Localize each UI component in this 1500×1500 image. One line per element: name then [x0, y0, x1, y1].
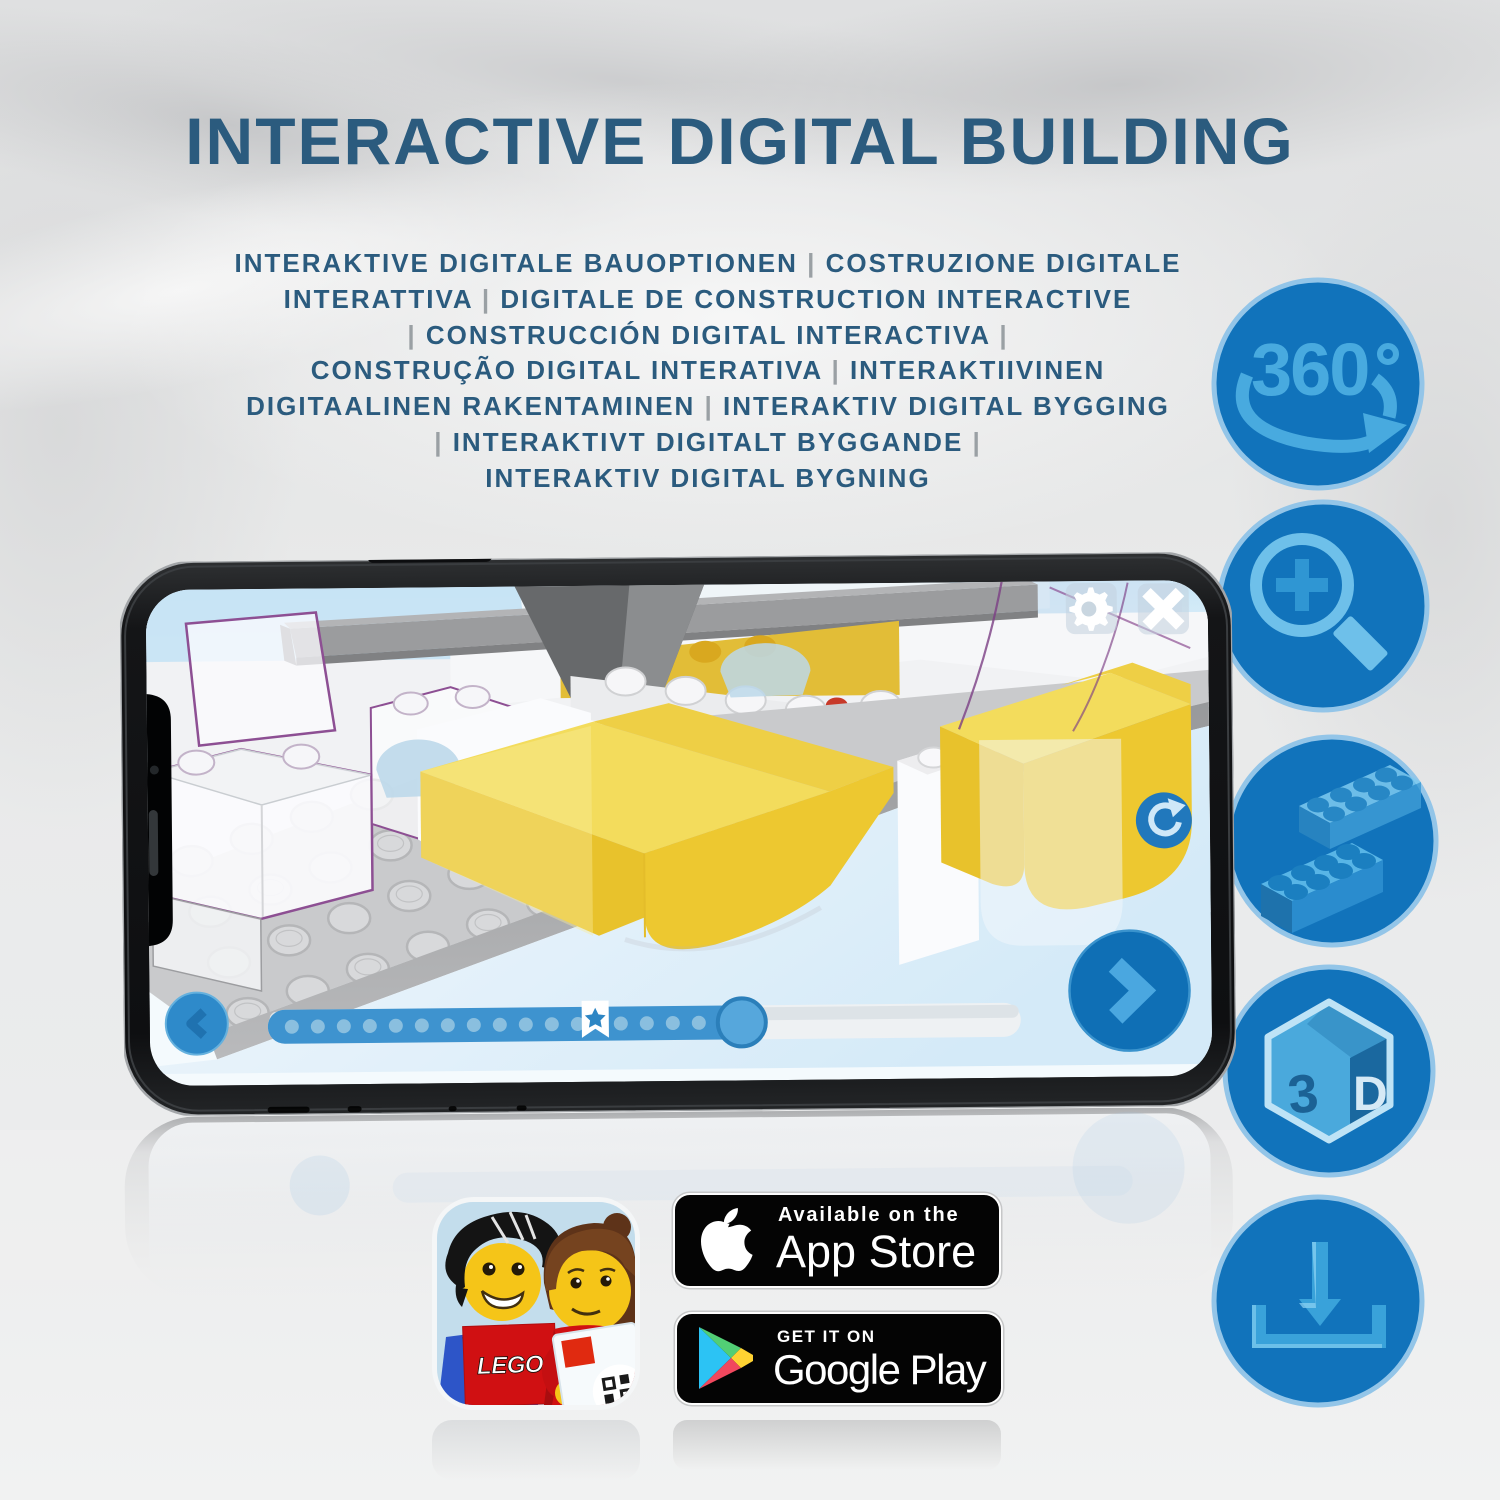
svg-text:LEGO: LEGO [477, 1351, 545, 1380]
svg-text:3: 3 [1285, 1063, 1321, 1126]
svg-text:360: 360 [1251, 328, 1368, 411]
svg-text:D: D [1353, 1068, 1388, 1121]
